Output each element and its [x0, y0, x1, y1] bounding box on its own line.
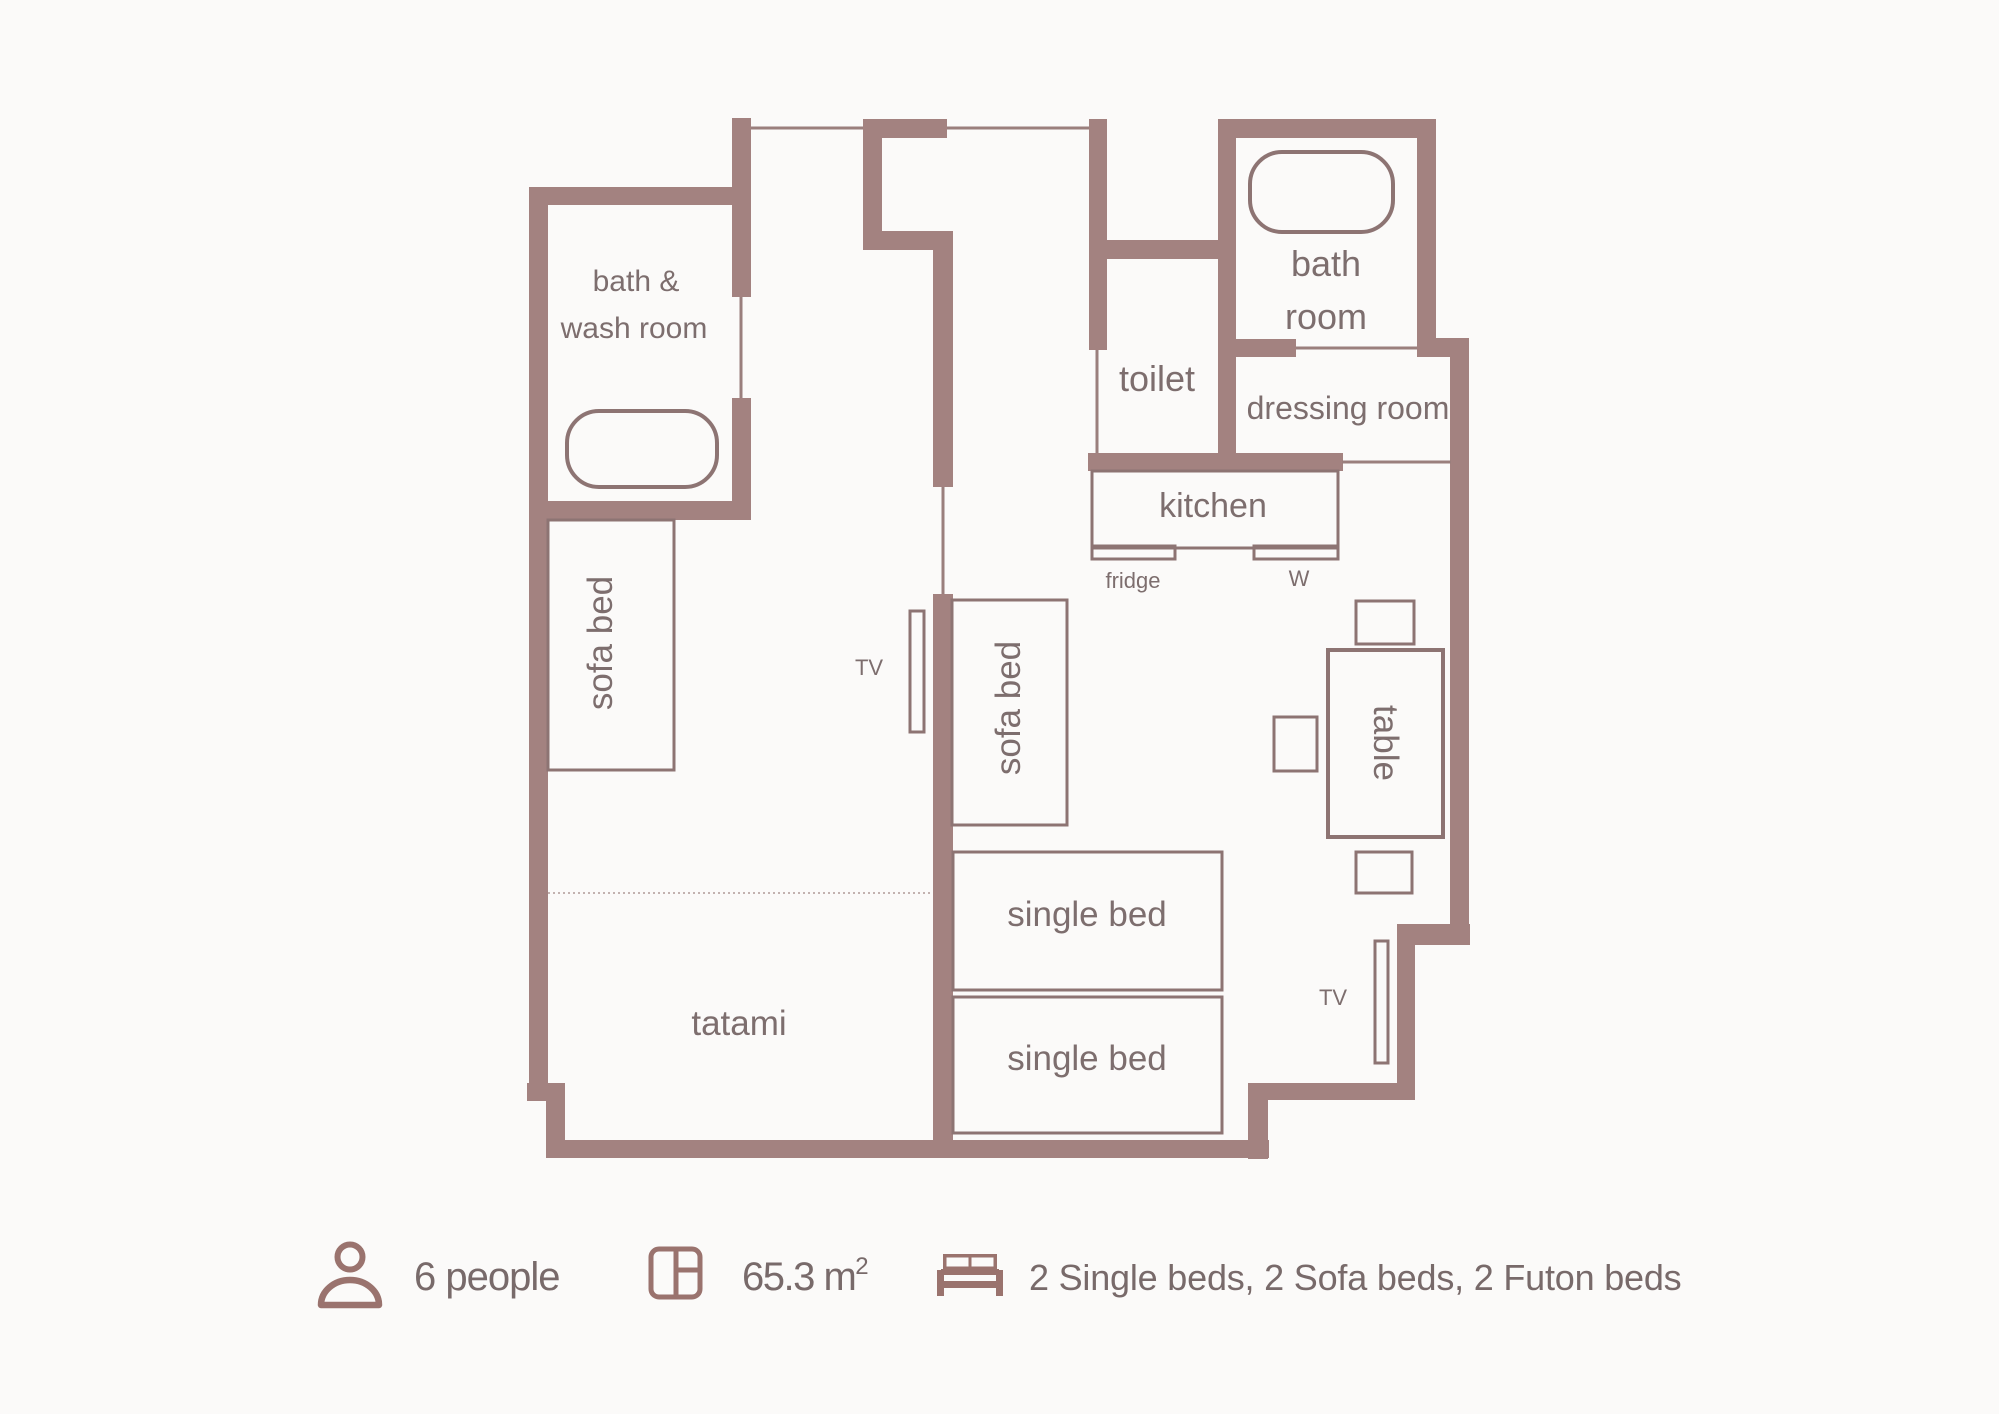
- svg-text:TV: TV: [855, 655, 883, 680]
- svg-text:2 Single beds, 2 Sofa beds, 2: 2 Single beds, 2 Sofa beds, 2 Futon beds: [1029, 1257, 1681, 1298]
- svg-text:dressing room: dressing room: [1247, 390, 1450, 426]
- svg-text:fridge: fridge: [1105, 568, 1160, 593]
- svg-text:toilet: toilet: [1119, 358, 1195, 399]
- svg-text:wash room: wash room: [560, 312, 708, 345]
- svg-text:sofa bed: sofa bed: [989, 641, 1028, 775]
- svg-text:tatami: tatami: [691, 1004, 786, 1043]
- svg-text:W: W: [1289, 566, 1310, 591]
- svg-text:TV: TV: [1319, 985, 1347, 1010]
- svg-text:single bed: single bed: [1007, 895, 1167, 934]
- svg-text:sofa bed: sofa bed: [581, 576, 620, 710]
- svg-text:kitchen: kitchen: [1159, 487, 1267, 525]
- svg-text:room: room: [1285, 296, 1367, 337]
- svg-text:table: table: [1366, 705, 1405, 781]
- svg-text:65.3 m2: 65.3 m2: [742, 1253, 868, 1299]
- svg-text:bath &: bath &: [593, 265, 680, 298]
- svg-text:single bed: single bed: [1007, 1039, 1167, 1078]
- svg-text:6 people: 6 people: [414, 1255, 559, 1299]
- svg-text:bath: bath: [1291, 243, 1361, 284]
